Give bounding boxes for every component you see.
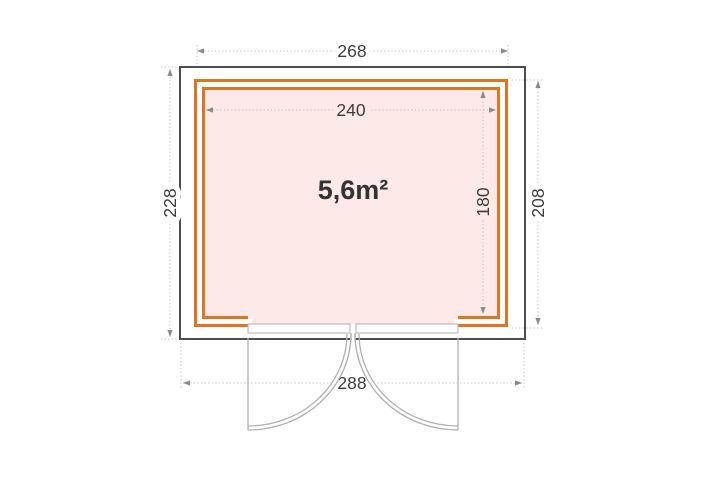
dim-label-inner-depth: 180 bbox=[473, 187, 493, 216]
door-left-swing-arc-inner bbox=[248, 334, 347, 426]
dimension-arrow bbox=[515, 380, 522, 385]
dimension-arrow bbox=[535, 318, 540, 325]
dim-label-outer-width: 268 bbox=[337, 41, 366, 61]
floor-plan-svg: 268 240 228 180 208 288 bbox=[0, 0, 707, 500]
closed-door-right bbox=[356, 324, 458, 333]
dimension-outer-width: 268 bbox=[197, 41, 508, 61]
area-label: 5,6m² bbox=[318, 175, 389, 205]
door-left-swing-arc-outer bbox=[248, 334, 351, 430]
dimension-roof-depth: 228 bbox=[160, 69, 180, 337]
dim-label-inner-width: 240 bbox=[336, 100, 365, 120]
closed-door-left bbox=[248, 324, 350, 333]
floor-plan-canvas: 268 240 228 180 208 288 bbox=[0, 0, 707, 500]
dim-label-outer-depth: 208 bbox=[528, 188, 548, 217]
dimension-arrow bbox=[197, 48, 204, 53]
floor-area bbox=[205, 90, 497, 324]
dimension-roof-width: 288 bbox=[183, 373, 522, 393]
dimension-arrow bbox=[167, 330, 172, 337]
door-left bbox=[248, 334, 351, 430]
dim-label-roof-depth: 228 bbox=[160, 188, 180, 217]
dimension-arrow bbox=[501, 48, 508, 53]
door-right bbox=[355, 334, 458, 430]
dim-label-roof-width: 288 bbox=[337, 373, 366, 393]
door-right-swing-arc-outer bbox=[355, 334, 458, 430]
door-right-swing-arc-inner bbox=[359, 334, 458, 426]
dimension-outer-depth: 208 bbox=[528, 81, 548, 325]
dimension-arrow bbox=[183, 380, 190, 385]
dimension-arrow bbox=[167, 69, 172, 76]
dimension-arrow bbox=[535, 81, 540, 88]
